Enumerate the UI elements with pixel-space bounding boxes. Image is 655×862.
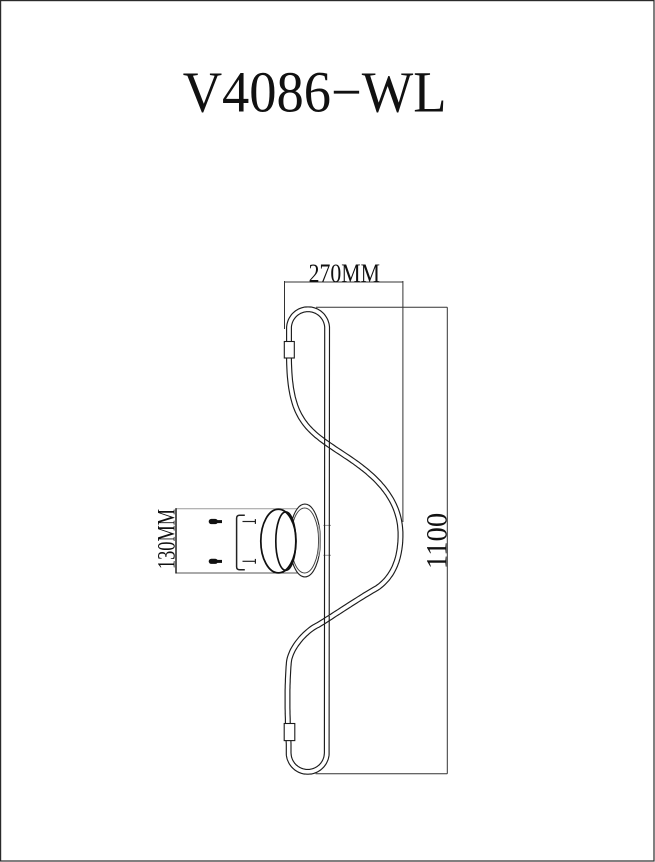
svg-text:130MM: 130MM <box>152 509 181 569</box>
svg-text:270MM: 270MM <box>309 260 380 288</box>
svg-text:1100: 1100 <box>421 513 453 569</box>
svg-text:V4086−WL: V4086−WL <box>183 61 447 125</box>
